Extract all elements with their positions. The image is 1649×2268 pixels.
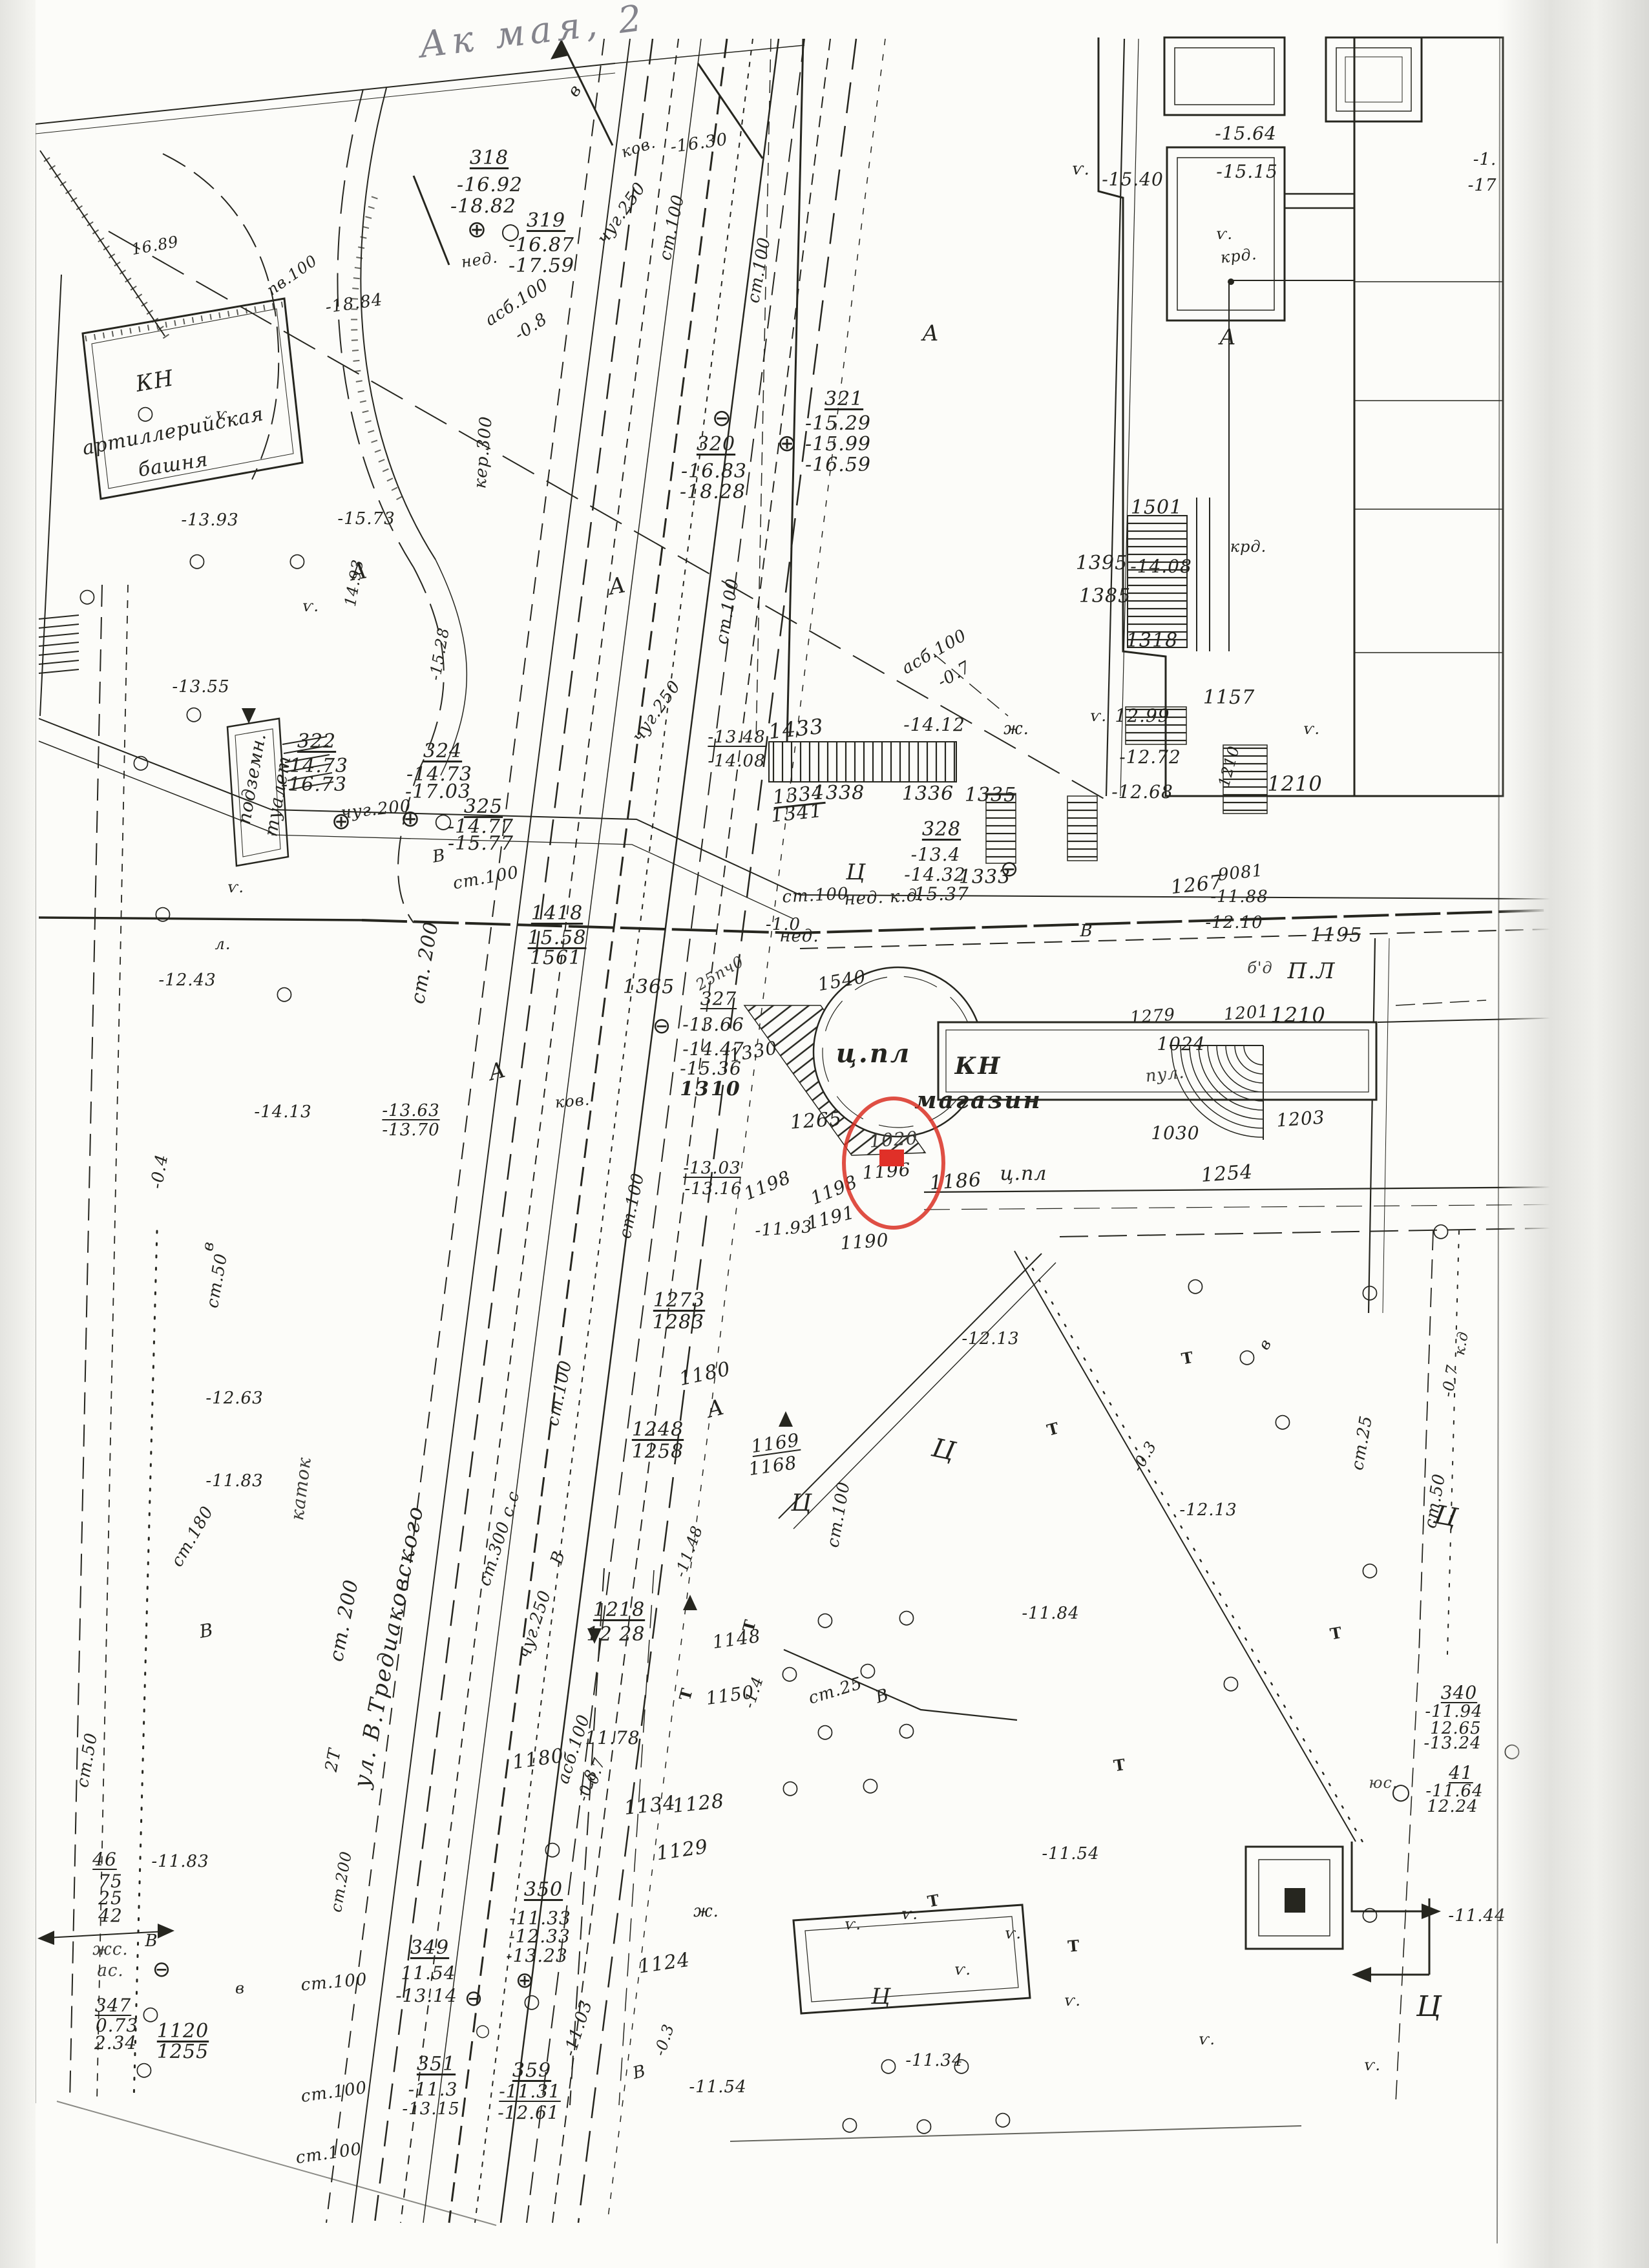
- map-label: 1203: [1276, 1108, 1325, 1129]
- map-label: 1190: [839, 1231, 889, 1252]
- map-label: ж.: [1003, 720, 1029, 737]
- map-label: 9081: [1217, 862, 1265, 883]
- map-label: ○: [136, 2060, 152, 2079]
- map-label: ѵ.: [227, 879, 244, 895]
- map-label: -13.63: [382, 1102, 439, 1119]
- map-label: 1501: [1131, 498, 1182, 518]
- map-label: -17.03: [405, 782, 471, 802]
- map-label: 1318: [1126, 631, 1178, 651]
- map-label: 15.58: [528, 929, 587, 948]
- map-label: пул.: [1144, 1064, 1185, 1085]
- map-label: ⊖: [1000, 858, 1019, 880]
- map-label: 322: [297, 732, 336, 751]
- map-label: 1310: [680, 1080, 742, 1099]
- map-label: -18.28: [680, 483, 746, 502]
- map-label: -13.03: [683, 1160, 740, 1177]
- map-label: 318: [470, 149, 509, 168]
- map-label: ѵ.: [901, 1906, 918, 1922]
- map-label: ○: [994, 2110, 1011, 2129]
- map-label: -16.83: [681, 462, 747, 481]
- map-label: ○: [862, 1776, 879, 1795]
- map-label: 320: [697, 435, 735, 454]
- map-label: 347: [95, 1997, 131, 2015]
- map-label: -14.08: [708, 753, 765, 770]
- map-label: 1120: [157, 2022, 209, 2041]
- map-label: А: [922, 322, 940, 344]
- map-label: ○: [953, 2056, 970, 2075]
- map-label: 321: [824, 390, 863, 409]
- map-label: Ц: [846, 861, 867, 883]
- map-label: 1433: [768, 716, 824, 742]
- map-label: ѵ.: [954, 1962, 971, 1977]
- map-label: -12.10: [1205, 914, 1263, 931]
- map-label: ⊖: [653, 1015, 671, 1037]
- map-label: Т: [1329, 1625, 1344, 1643]
- map-label: А: [1219, 326, 1237, 348]
- map-label: ○: [434, 810, 452, 831]
- map-label: 1336: [902, 784, 954, 804]
- scanned-map-page: Ак мая, 2 318-16.92-18.82319-16.87-17.59…: [0, 0, 1649, 2268]
- map-label: -11.83: [151, 1853, 209, 1870]
- map-label: ⊕: [467, 218, 487, 242]
- map-label: ○: [1361, 1905, 1378, 1924]
- map-label: П.Л: [1288, 960, 1336, 982]
- map-label: -12.63: [205, 1390, 263, 1407]
- map-label: ○: [185, 704, 202, 724]
- map-label: -15.77: [448, 834, 514, 854]
- map-label: -12.33: [509, 1927, 571, 1946]
- map-label: -14.13: [254, 1104, 311, 1120]
- map-label: -13.23: [506, 1947, 568, 1965]
- map-label: -13.55: [172, 678, 229, 695]
- map-label: -11.31: [499, 2083, 561, 2101]
- map-label: жс.: [92, 1941, 128, 1958]
- map-label: ас.: [97, 1962, 123, 1979]
- map-label: 12.99: [1115, 707, 1170, 725]
- map-label: -13.48: [708, 729, 765, 746]
- map-label: -12.43: [158, 972, 216, 989]
- map-label: Т: [1067, 1938, 1081, 1955]
- map-label: ○: [476, 2022, 490, 2039]
- map-label: 328: [922, 820, 961, 839]
- map-label: 340: [1441, 1684, 1477, 1702]
- map-label: ѵ.: [1364, 2057, 1381, 2073]
- map-label: ○: [289, 551, 306, 571]
- map-label: В: [431, 846, 447, 865]
- map-label: -16.92: [457, 176, 523, 195]
- map-label: ѵ.: [845, 1916, 861, 1932]
- map-label: ѵ.: [1216, 226, 1233, 242]
- scan-edge-shadow: [1497, 0, 1649, 2268]
- map-label: ○: [1433, 1221, 1449, 1241]
- map-label: ков.: [554, 1092, 591, 1111]
- map-label: 42: [98, 1907, 123, 1925]
- map-label: ○: [1223, 1674, 1239, 1693]
- map-label: крд.: [1230, 539, 1267, 554]
- map-label: 319: [527, 211, 565, 231]
- map-label: -15.73: [337, 510, 395, 527]
- map-label: -12.68: [1111, 783, 1173, 801]
- map-label: Ц: [1416, 1993, 1442, 2021]
- map-label: -14.08: [1130, 558, 1192, 576]
- map-label: -18.82: [450, 197, 516, 216]
- map-label: Ц: [871, 1986, 892, 2008]
- map-label: ○: [523, 1992, 540, 2011]
- map-label: -11.33: [509, 1909, 571, 1927]
- map-label: -11.94: [1425, 1703, 1482, 1720]
- annotation-mark: [879, 1150, 904, 1166]
- map-label: 351: [417, 2055, 456, 2074]
- map-label: 1024: [1157, 1035, 1205, 1053]
- map-label: -14.32: [904, 866, 966, 884]
- map-label: -17.59: [509, 257, 574, 276]
- map-label: ○: [79, 587, 96, 606]
- map-label: -13.16: [684, 1181, 742, 1197]
- map-label: 327: [700, 990, 737, 1008]
- map-label: ѵ.: [216, 406, 233, 422]
- map-label: 1157: [1203, 688, 1255, 708]
- map-label: ○: [137, 404, 154, 423]
- map-label: ⊖: [465, 1988, 483, 2010]
- map-label: ѵ.: [1199, 2032, 1215, 2047]
- map-label: 2Т: [323, 1747, 344, 1773]
- map-label: 1341: [770, 801, 823, 826]
- map-label: 350: [524, 1880, 563, 1900]
- map-label: ○: [859, 1661, 876, 1680]
- map-label: ⊖: [712, 407, 731, 430]
- map-label: ○: [1239, 1347, 1255, 1367]
- map-label: ○: [1361, 1560, 1378, 1580]
- map-label: ѵ.: [1005, 1926, 1022, 1941]
- map-label: -1.: [1473, 151, 1497, 168]
- map-label: ○: [1274, 1412, 1291, 1431]
- map-label: 1258: [632, 1442, 684, 1462]
- map-label: ○: [916, 2116, 932, 2136]
- map-label: ○: [898, 1721, 915, 1740]
- map-label: ○: [1391, 1781, 1411, 1803]
- map-label: -11.83: [205, 1473, 263, 1489]
- map-label: нед.: [779, 928, 819, 945]
- map-label: -12.13: [961, 1330, 1019, 1347]
- map-label: 41: [1449, 1764, 1473, 1782]
- map-label: -15.64: [1215, 125, 1277, 143]
- map-label: -13.70: [382, 1122, 439, 1139]
- map-label: -17: [1468, 177, 1497, 194]
- map-label: ○: [880, 2056, 897, 2075]
- map-label: ○: [501, 220, 520, 242]
- map-label: ○: [781, 1664, 798, 1683]
- map-label: -13.24: [1423, 1735, 1481, 1752]
- map-label: 12.24: [1427, 1798, 1478, 1815]
- map-label: Т: [927, 1893, 941, 1910]
- map-label: 1338: [813, 784, 865, 803]
- map-label: КН: [955, 1055, 1002, 1078]
- map-label: 1265: [790, 1109, 843, 1133]
- map-label: ○: [154, 904, 171, 923]
- map-label: ѵ.: [1072, 161, 1090, 178]
- map-label: 1385: [1079, 587, 1131, 606]
- map-label: ○: [189, 551, 205, 571]
- map-label: 1210: [1270, 1005, 1325, 1025]
- map-label: л.: [215, 936, 231, 952]
- map-label: Т: [1181, 1350, 1195, 1367]
- map-label: В: [198, 1621, 215, 1641]
- map-label: -13.93: [181, 512, 238, 529]
- map-label: ж.: [693, 1903, 719, 1920]
- map-label: 12 28: [587, 1625, 646, 1644]
- map-label: В: [1080, 923, 1093, 940]
- map-label: 359: [512, 2061, 551, 2081]
- map-label: ц.пл: [836, 1041, 911, 1067]
- map-label: 1201: [1223, 1003, 1270, 1024]
- map-label: ѵ.: [1303, 721, 1320, 737]
- map-label: 325: [464, 797, 503, 817]
- map-label: ѵ.: [1064, 1993, 1081, 2008]
- map-label: ○: [817, 1722, 834, 1741]
- map-label: крд.: [1220, 246, 1258, 266]
- map-label: ⊖: [152, 1958, 171, 1980]
- map-label: ○: [841, 2115, 858, 2134]
- map-label: ○: [132, 753, 149, 772]
- map-label: 11.54: [401, 1964, 456, 1982]
- map-label: ⊕: [516, 1969, 534, 1991]
- map-label: ⊕: [331, 810, 351, 834]
- map-label: -11.54: [1042, 1845, 1099, 1862]
- map-label: ○: [817, 1610, 834, 1630]
- map-label: Ц: [791, 1492, 812, 1515]
- map-label: ѵ.: [1090, 708, 1107, 724]
- map-label: 1210: [1267, 773, 1322, 794]
- map-label: -11.54: [689, 2079, 746, 2095]
- map-label: 1335: [965, 786, 1016, 805]
- map-label: 1134: [623, 1794, 677, 1818]
- map-label: 1279: [1129, 1007, 1176, 1027]
- map-label: 324: [423, 742, 462, 761]
- map-label: нед.: [460, 249, 499, 270]
- map-label: 11.78: [585, 1729, 640, 1747]
- map-label: -13.4: [911, 846, 961, 864]
- map-label: 1561: [530, 949, 582, 968]
- map-label: -16.59: [805, 456, 871, 475]
- map-label: 1273: [653, 1291, 705, 1310]
- map-label: -14.12: [903, 716, 965, 734]
- map-label: ○: [1187, 1276, 1204, 1296]
- map-label: 2.34: [94, 2034, 137, 2052]
- map-label: 46: [92, 1851, 117, 1869]
- map-label: ѵ.: [302, 598, 319, 614]
- map-label: КН: [134, 367, 176, 395]
- map-label: -15.99: [805, 435, 871, 454]
- map-label: -12.72: [1119, 748, 1181, 766]
- map-label: магазин: [914, 1089, 1042, 1112]
- map-label: -15.15: [1216, 163, 1278, 181]
- map-label: 1395: [1076, 554, 1128, 573]
- map-label: -13.14: [395, 1987, 457, 2005]
- map-label: -11.3: [408, 2081, 458, 2099]
- map-label: 1418: [531, 904, 583, 923]
- map-label: -11.84: [1022, 1605, 1079, 1622]
- map-label: Т: [1113, 1757, 1127, 1774]
- map-label: 1248: [632, 1420, 684, 1440]
- map-label: в: [235, 1980, 246, 1996]
- map-label: ст.100: [782, 885, 849, 905]
- map-label: -11.88: [1210, 888, 1268, 905]
- map-label: б'д: [1247, 960, 1272, 976]
- map-label: ⊕: [777, 432, 797, 456]
- map-label: -12.61: [498, 2104, 560, 2122]
- map-label: ○: [276, 984, 293, 1003]
- map-label: -15.40: [1102, 171, 1164, 189]
- map-label: ○: [898, 1608, 915, 1627]
- map-label: -13.15: [402, 2101, 459, 2117]
- map-label: -15.29: [805, 414, 871, 434]
- map-label: 1255: [157, 2042, 209, 2062]
- map-label: 1254: [1201, 1162, 1254, 1186]
- map-label: В: [145, 1933, 158, 1949]
- map-label: 1283: [653, 1313, 704, 1332]
- map-label: нед. к.д.: [844, 887, 924, 908]
- map-label: ц.пл: [1000, 1164, 1047, 1184]
- map-label: ○: [782, 1778, 799, 1798]
- map-label: 1195: [1310, 926, 1362, 945]
- map-label: 1128: [671, 1792, 725, 1816]
- map-label: 1030: [1151, 1124, 1199, 1142]
- map-label: -13.66: [682, 1016, 744, 1034]
- map-label: А: [607, 574, 628, 598]
- map-label: ○: [544, 1840, 561, 1859]
- map-label: 349: [410, 1938, 449, 1958]
- map-linework: [0, 0, 1649, 2268]
- map-label: ⊕: [401, 808, 420, 831]
- map-label: -11.93: [755, 1219, 814, 1239]
- scan-edge-left: [0, 0, 36, 2268]
- map-label: ○: [1361, 1283, 1378, 1302]
- map-label: 1365: [623, 978, 675, 997]
- map-label: -12.13: [1179, 1502, 1237, 1518]
- map-label: 1218: [593, 1601, 645, 1620]
